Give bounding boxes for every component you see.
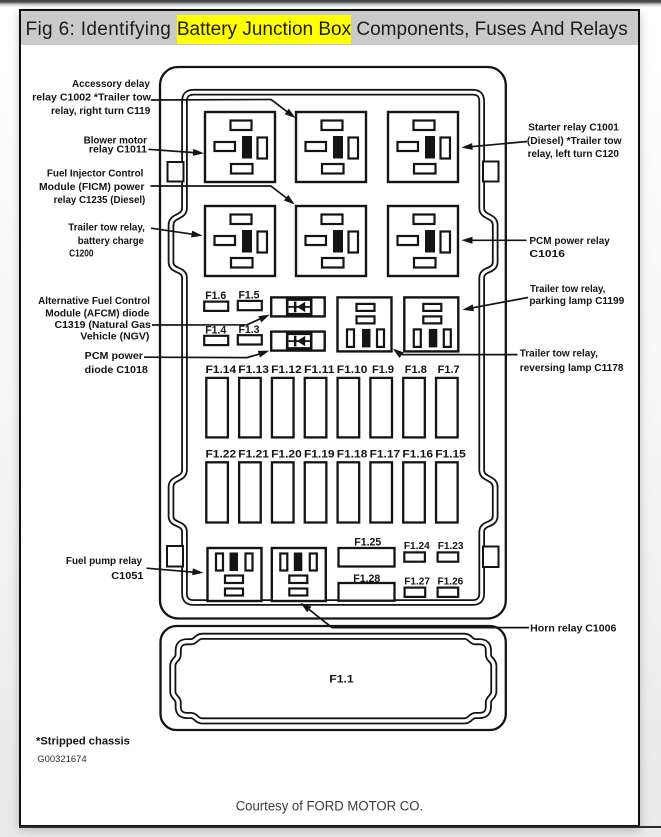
svg-text:F1.9: F1.9 xyxy=(372,364,394,376)
svg-text:F1.25: F1.25 xyxy=(354,537,381,549)
svg-text:F1.27: F1.27 xyxy=(404,575,430,587)
svg-text:F1.24: F1.24 xyxy=(404,540,430,552)
svg-text:Courtesy of FORD MOTOR CO.: Courtesy of FORD MOTOR CO. xyxy=(236,799,423,814)
svg-text:Module (FICM) power: Module (FICM) power xyxy=(39,182,144,193)
svg-text:F1.18: F1.18 xyxy=(337,448,368,460)
svg-text:PCM power: PCM power xyxy=(85,351,143,362)
svg-text:*Stripped chassis: *Stripped chassis xyxy=(36,736,130,748)
svg-text:Fuel pump relay: Fuel pump relay xyxy=(66,556,143,567)
svg-text:C1016: C1016 xyxy=(529,249,565,260)
svg-text:Accessory delay: Accessory delay xyxy=(72,79,150,90)
svg-text:Fuel Injector Control: Fuel Injector Control xyxy=(47,168,144,179)
svg-text:C1200: C1200 xyxy=(69,248,94,259)
svg-text:F1.10: F1.10 xyxy=(337,364,368,376)
svg-text:parking lamp C1199: parking lamp C1199 xyxy=(529,296,624,307)
svg-text:Alternative Fuel Control: Alternative Fuel Control xyxy=(38,296,150,307)
svg-text:F1.12: F1.12 xyxy=(271,364,302,376)
svg-text:battery charge: battery charge xyxy=(78,236,144,247)
svg-text:F1.26: F1.26 xyxy=(438,575,464,587)
svg-text:PCM power relay: PCM power relay xyxy=(529,236,610,247)
svg-text:F1.11: F1.11 xyxy=(304,364,335,376)
svg-text:relay, right turn C119: relay, right turn C119 xyxy=(51,106,151,117)
svg-text:C1319 (Natural Gas: C1319 (Natural Gas xyxy=(55,320,152,331)
svg-text:F1.21: F1.21 xyxy=(238,448,269,460)
svg-text:F1.1: F1.1 xyxy=(329,673,354,685)
svg-text:relay C1011: relay C1011 xyxy=(89,145,147,156)
svg-text:Trailer tow relay,: Trailer tow relay, xyxy=(520,349,598,360)
svg-text:G00321674: G00321674 xyxy=(37,754,86,764)
svg-text:F1.19: F1.19 xyxy=(304,448,335,460)
svg-text:F1.14: F1.14 xyxy=(206,364,237,376)
svg-text:F1.23: F1.23 xyxy=(438,540,464,552)
svg-text:Trailer tow relay,: Trailer tow relay, xyxy=(530,284,605,295)
svg-text:C1051: C1051 xyxy=(111,571,144,582)
svg-text:F1.22: F1.22 xyxy=(206,448,237,460)
svg-text:relay C1235 (Diesel): relay C1235 (Diesel) xyxy=(54,195,146,206)
svg-text:Vehicle (NGV): Vehicle (NGV) xyxy=(80,331,149,342)
svg-text:diode C1018: diode C1018 xyxy=(85,365,149,376)
svg-text:F1.16: F1.16 xyxy=(402,448,433,460)
svg-text:F1.8: F1.8 xyxy=(405,364,427,376)
svg-text:reversing lamp C1178: reversing lamp C1178 xyxy=(520,363,624,374)
svg-text:Horn relay C1006: Horn relay C1006 xyxy=(530,624,617,635)
svg-text:Trailer tow relay,: Trailer tow relay, xyxy=(68,223,145,234)
svg-text:Starter relay C1001: Starter relay C1001 xyxy=(528,122,619,133)
svg-text:relay C1002 *Trailer tow: relay C1002 *Trailer tow xyxy=(32,92,151,103)
svg-text:relay, left turn C120: relay, left turn C120 xyxy=(528,149,620,160)
svg-text:(Diesel) *Trailer tow: (Diesel) *Trailer tow xyxy=(527,136,622,147)
svg-text:F1.6: F1.6 xyxy=(205,290,226,302)
svg-text:Module (AFCM) diode: Module (AFCM) diode xyxy=(45,309,149,320)
svg-text:F1.17: F1.17 xyxy=(370,448,401,460)
svg-text:F1.7: F1.7 xyxy=(438,364,460,376)
svg-text:F1.20: F1.20 xyxy=(271,448,302,460)
svg-text:F1.15: F1.15 xyxy=(435,448,466,460)
svg-text:F1.13: F1.13 xyxy=(238,364,269,376)
